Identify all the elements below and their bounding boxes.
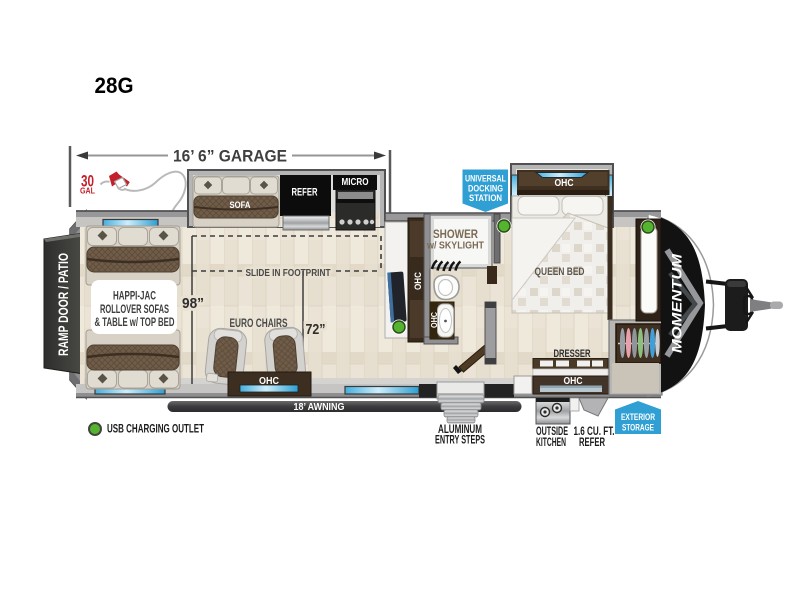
svg-text:72”: 72”: [306, 322, 326, 338]
svg-text:w/ SKYLIGHT: w/ SKYLIGHT: [426, 241, 484, 252]
svg-text:28G: 28G: [95, 73, 134, 98]
svg-text:SLIDE IN FOOTPRINT: SLIDE IN FOOTPRINT: [246, 267, 331, 279]
svg-text:REFER: REFER: [579, 437, 605, 449]
svg-text:STATION: STATION: [469, 193, 502, 204]
svg-text:GAL: GAL: [80, 187, 95, 196]
svg-text:SOFA: SOFA: [230, 200, 251, 211]
svg-text:18’ AWNING: 18’ AWNING: [294, 401, 345, 413]
svg-text:16’ 6” GARAGE: 16’ 6” GARAGE: [173, 147, 287, 166]
svg-text:OHC: OHC: [555, 178, 574, 189]
svg-text:EXTERIOR: EXTERIOR: [621, 412, 655, 423]
svg-text:STORAGE: STORAGE: [622, 423, 654, 434]
svg-text:SHOWER: SHOWER: [433, 229, 479, 241]
svg-text:MOMENTUM: MOMENTUM: [670, 253, 685, 353]
svg-text:MICRO: MICRO: [342, 177, 369, 188]
svg-text:RAMP DOOR / PATIO: RAMP DOOR / PATIO: [55, 253, 71, 356]
svg-text:OHC: OHC: [413, 272, 424, 290]
svg-text:OHC: OHC: [429, 312, 439, 328]
svg-text:OHC: OHC: [259, 375, 279, 387]
svg-text:QUEEN BED: QUEEN BED: [535, 266, 585, 278]
svg-text:OHC: OHC: [564, 376, 583, 387]
svg-text:USB CHARGING OUTLET: USB CHARGING OUTLET: [107, 424, 204, 436]
svg-text:KITCHEN: KITCHEN: [536, 437, 566, 449]
svg-text:REFER: REFER: [292, 187, 318, 199]
svg-text:ENTRY STEPS: ENTRY STEPS: [435, 435, 485, 447]
svg-text:ROLLOVER SOFAS: ROLLOVER SOFAS: [100, 304, 169, 316]
svg-text:98”: 98”: [182, 295, 204, 312]
svg-text:HAPPI-JAC: HAPPI-JAC: [113, 291, 156, 303]
svg-text:& TABLE w/ TOP BED: & TABLE w/ TOP BED: [95, 317, 175, 329]
